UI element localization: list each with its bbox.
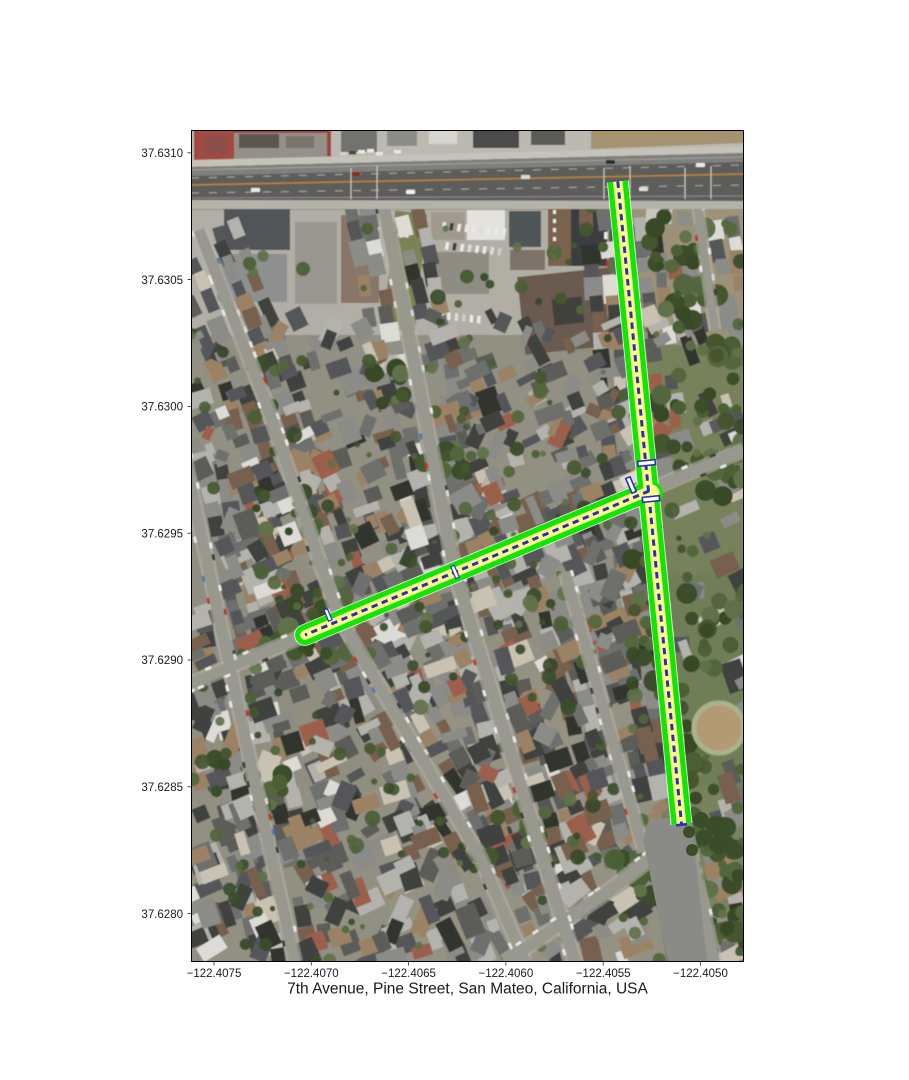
svg-text:37.6280: 37.6280	[141, 909, 183, 921]
svg-text:37.6300: 37.6300	[141, 402, 183, 414]
svg-text:7th Avenue, Pine Street, San M: 7th Avenue, Pine Street, San Mateo, Cali…	[287, 981, 648, 998]
svg-text:−122.4070: −122.4070	[284, 968, 339, 980]
svg-text:37.6290: 37.6290	[141, 655, 183, 667]
svg-text:−122.4060: −122.4060	[479, 968, 534, 980]
svg-text:37.6310: 37.6310	[141, 148, 183, 160]
svg-text:−122.4075: −122.4075	[187, 968, 242, 980]
svg-text:37.6285: 37.6285	[141, 782, 183, 794]
svg-text:−122.4065: −122.4065	[381, 968, 436, 980]
svg-text:−122.4050: −122.4050	[673, 968, 728, 980]
svg-text:37.6305: 37.6305	[141, 275, 183, 287]
svg-text:37.6295: 37.6295	[141, 528, 183, 540]
svg-text:−122.4055: −122.4055	[576, 968, 631, 980]
